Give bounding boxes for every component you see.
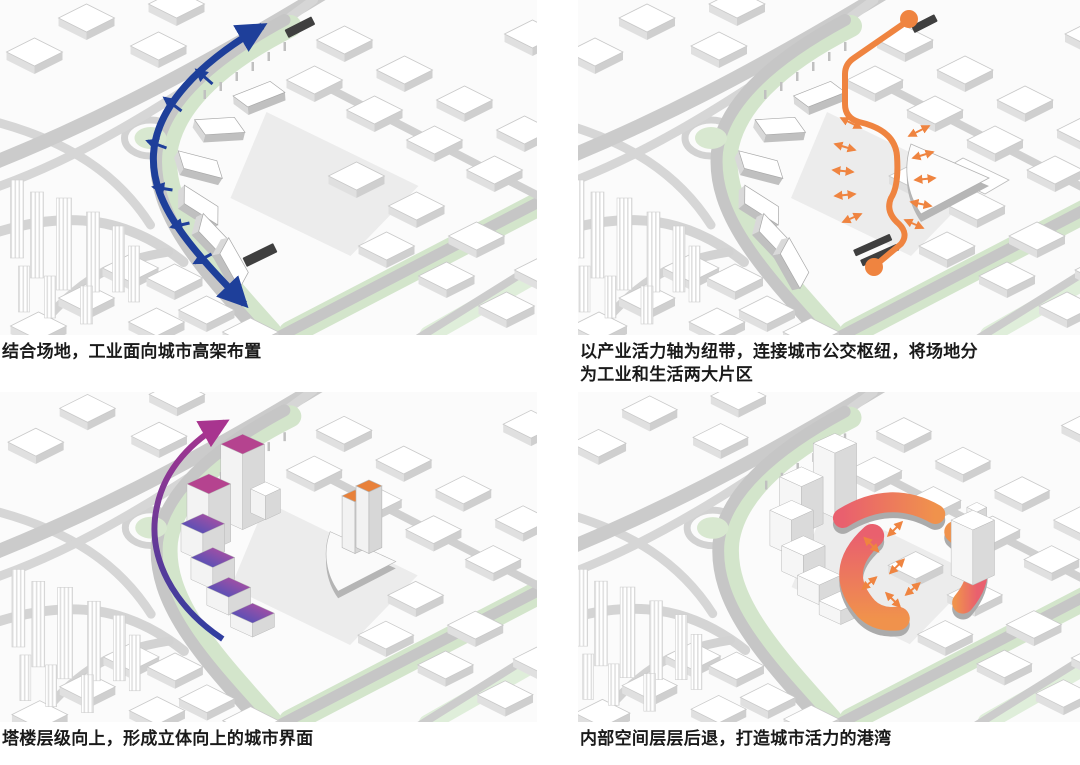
panel-4-harbor: 内部空间层层后退，打造城市活力的港湾 bbox=[537, 392, 1080, 765]
concept-diagram-sheet: 结合场地，工业面向城市高架布置 bbox=[0, 0, 1080, 765]
diagram-grid: 结合场地，工业面向城市高架布置 bbox=[0, 0, 1080, 765]
diagram-blue-flow bbox=[0, 0, 537, 335]
panel-3-tower-rise: 塔楼层级向上，形成立体向上的城市界面 bbox=[0, 392, 537, 765]
panel-2-caption: 以产业活力轴为纽带，连接城市公交枢纽，将场地分 为工业和生活两大片区 bbox=[578, 335, 990, 387]
axis-node-bottom bbox=[865, 258, 883, 276]
panel-2-vitality-axis: 以产业活力轴为纽带，连接城市公交枢纽，将场地分 为工业和生活两大片区 bbox=[537, 0, 1080, 392]
diagram-harbor bbox=[578, 392, 1080, 722]
axis-node-top bbox=[900, 10, 918, 28]
panel-3-caption: 塔楼层级向上，形成立体向上的城市界面 bbox=[0, 722, 537, 750]
diagram-tower-rise bbox=[0, 392, 537, 722]
panel-1-caption: 结合场地，工业面向城市高架布置 bbox=[0, 335, 537, 363]
diagram-vitality-axis bbox=[578, 0, 1080, 335]
panel-1-site-arrangement: 结合场地，工业面向城市高架布置 bbox=[0, 0, 537, 392]
panel-4-caption: 内部空间层层后退，打造城市活力的港湾 bbox=[578, 722, 1080, 750]
